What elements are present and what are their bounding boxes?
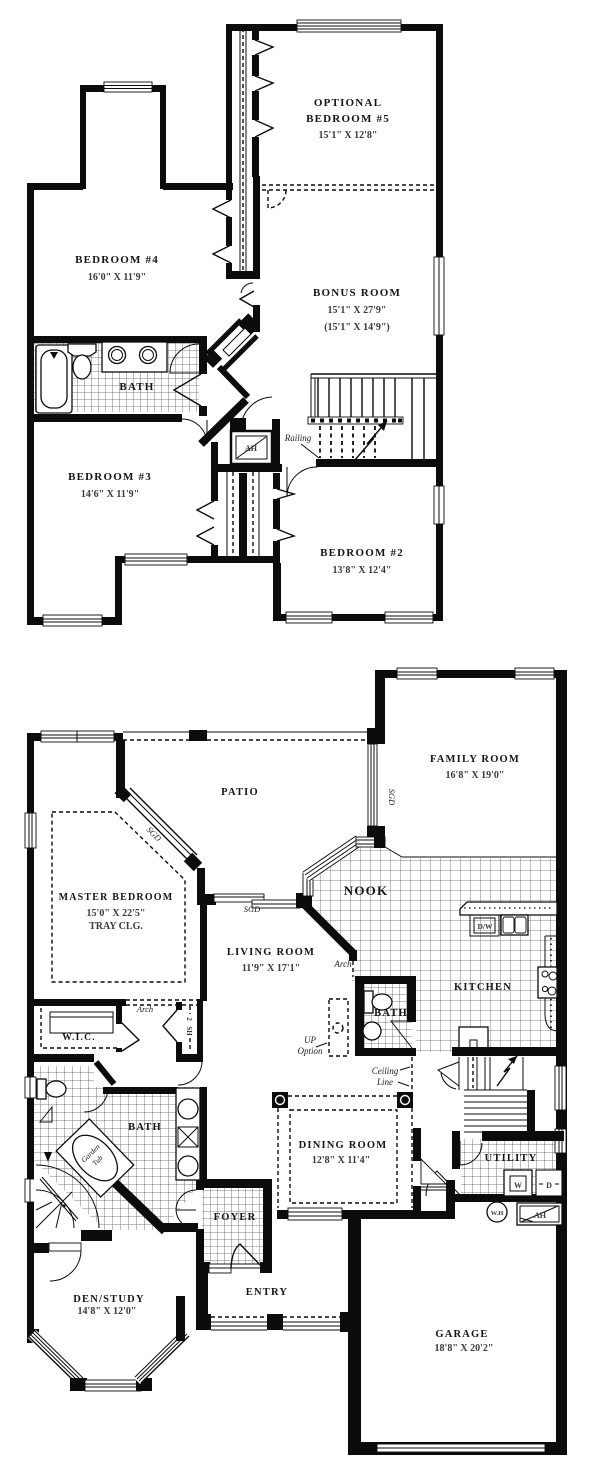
svg-text:SGD: SGD: [387, 789, 397, 806]
svg-text:ENTRY: ENTRY: [246, 1287, 288, 1298]
svg-text:FOYER: FOYER: [214, 1212, 257, 1223]
svg-text:Line: Line: [376, 1077, 393, 1087]
svg-text:D/W: D/W: [478, 922, 494, 931]
svg-text:18'8" X 20'2": 18'8" X 20'2": [435, 1343, 494, 1354]
svg-text:BATH: BATH: [119, 381, 154, 393]
svg-text:12'8" X 11'4": 12'8" X 11'4": [312, 1155, 370, 1166]
svg-text:BEDROOM #2: BEDROOM #2: [320, 547, 404, 559]
svg-text:SGD: SGD: [244, 904, 261, 914]
svg-text:15'1" X 27'9": 15'1" X 27'9": [328, 305, 387, 316]
svg-text:BEDROOM #4: BEDROOM #4: [75, 254, 159, 266]
svg-text:PATIO: PATIO: [221, 787, 259, 798]
svg-text:BONUS ROOM: BONUS ROOM: [313, 287, 401, 299]
svg-text:14'8" X 12'0": 14'8" X 12'0": [78, 1306, 137, 1317]
svg-text:14'6" X 11'9": 14'6" X 11'9": [81, 489, 139, 500]
svg-text:FAMILY ROOM: FAMILY ROOM: [430, 754, 520, 765]
svg-text:BATH: BATH: [128, 1122, 162, 1133]
svg-text:OPTIONAL: OPTIONAL: [314, 97, 382, 109]
svg-text:D: D: [546, 1181, 552, 1190]
svg-text:(15'1" X 14'9"): (15'1" X 14'9"): [324, 322, 390, 333]
svg-text:GARAGE: GARAGE: [435, 1329, 488, 1340]
svg-text:2: 2: [185, 1017, 193, 1021]
svg-text:Ceiling: Ceiling: [372, 1066, 399, 1076]
svg-text:KITCHEN: KITCHEN: [454, 982, 512, 993]
svg-text:W: W: [514, 1181, 522, 1190]
svg-text:AH: AH: [534, 1211, 547, 1220]
svg-text:BEDROOM #3: BEDROOM #3: [68, 471, 152, 483]
svg-text:DINING ROOM: DINING ROOM: [299, 1140, 388, 1151]
svg-text:UTILITY: UTILITY: [485, 1153, 538, 1164]
svg-text:15'0" X 22'5": 15'0" X 22'5": [87, 908, 146, 919]
svg-text:BEDROOM #5: BEDROOM #5: [306, 113, 390, 125]
svg-text:TRAY CLG.: TRAY CLG.: [89, 921, 143, 932]
svg-text:SH: SH: [185, 1026, 193, 1036]
svg-text:NOOK: NOOK: [344, 883, 389, 898]
svg-text:Railing: Railing: [284, 433, 312, 443]
svg-text:16'0" X 11'9": 16'0" X 11'9": [88, 272, 146, 283]
svg-text:11'9" X 17'1": 11'9" X 17'1": [242, 963, 300, 974]
svg-text:W.I.C.: W.I.C.: [62, 1033, 96, 1043]
svg-text:W.H: W.H: [491, 1210, 504, 1217]
svg-text:13'8" X 12'4": 13'8" X 12'4": [333, 565, 392, 576]
svg-text:AH: AH: [245, 444, 258, 453]
svg-text:LIVING ROOM: LIVING ROOM: [227, 947, 315, 958]
svg-text:16'8" X 19'0": 16'8" X 19'0": [446, 770, 505, 781]
svg-text:MASTER BEDROOM: MASTER BEDROOM: [59, 892, 174, 903]
svg-text:Option: Option: [297, 1046, 323, 1056]
svg-text:DEN/STUDY: DEN/STUDY: [73, 1294, 144, 1305]
svg-text:Arch: Arch: [136, 1004, 153, 1014]
svg-text:BATH: BATH: [374, 1008, 408, 1019]
svg-text:UP: UP: [304, 1035, 316, 1045]
svg-text:Arch: Arch: [333, 959, 352, 969]
svg-text:15'1" X 12'8": 15'1" X 12'8": [319, 130, 378, 141]
